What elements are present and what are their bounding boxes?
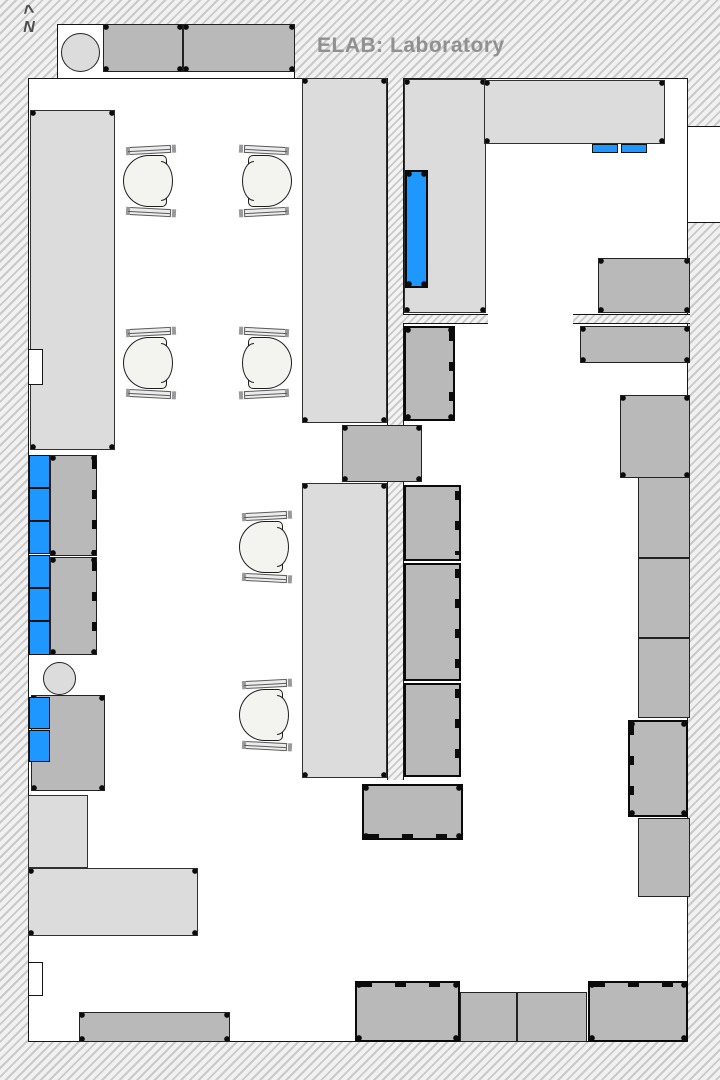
equipment-block bbox=[50, 455, 97, 556]
interior-wall bbox=[387, 78, 404, 426]
chair-armrest bbox=[243, 511, 287, 521]
blue-equipment bbox=[29, 730, 50, 762]
chair-armrest bbox=[244, 327, 288, 337]
chair-seat bbox=[248, 155, 292, 207]
blue-equipment bbox=[29, 621, 50, 655]
counter-block bbox=[302, 78, 387, 423]
blue-equipment bbox=[29, 455, 50, 488]
counter-block bbox=[30, 110, 115, 450]
chair bbox=[238, 328, 293, 398]
chair-front-edge bbox=[161, 161, 173, 201]
north-arrow: ^ N bbox=[14, 6, 44, 36]
blue-equipment bbox=[29, 521, 50, 554]
door-notch bbox=[28, 349, 43, 385]
chair-armrest bbox=[243, 741, 287, 751]
interior-wall bbox=[387, 482, 404, 780]
chair-armrest bbox=[244, 207, 288, 217]
chair-armrest bbox=[127, 327, 171, 337]
chair bbox=[122, 328, 177, 398]
chair-armrest bbox=[127, 145, 171, 155]
equipment-block bbox=[580, 326, 690, 363]
blue-equipment bbox=[29, 697, 50, 729]
chair-armrest bbox=[127, 207, 171, 217]
stool bbox=[61, 33, 100, 72]
counter-block bbox=[28, 795, 88, 868]
chair-front-edge bbox=[242, 161, 254, 201]
chair bbox=[238, 680, 293, 750]
counter-block bbox=[302, 483, 387, 778]
blue-equipment bbox=[29, 488, 50, 521]
equipment-block bbox=[404, 485, 461, 561]
chair-front-edge bbox=[242, 343, 254, 383]
chair-front-edge bbox=[277, 527, 289, 567]
chair bbox=[238, 146, 293, 216]
equipment-block bbox=[362, 784, 463, 840]
blue-equipment bbox=[29, 588, 50, 621]
equipment-block bbox=[342, 425, 422, 482]
equipment-block bbox=[50, 557, 97, 655]
blue-equipment bbox=[592, 144, 618, 153]
blue-equipment bbox=[29, 555, 50, 588]
equipment-block bbox=[79, 1012, 230, 1042]
chair-front-edge bbox=[277, 695, 289, 735]
equipment-block bbox=[638, 558, 690, 638]
counter-block bbox=[28, 868, 198, 936]
equipment-block bbox=[404, 326, 455, 421]
chair-front-edge bbox=[161, 343, 173, 383]
equipment-block bbox=[404, 683, 461, 777]
instrument-block bbox=[628, 720, 688, 817]
equipment-block bbox=[638, 818, 690, 897]
equipment-block bbox=[598, 258, 690, 313]
chair-armrest bbox=[244, 389, 288, 399]
equipment-block bbox=[588, 981, 688, 1042]
equipment-block bbox=[517, 992, 587, 1042]
interior-wall bbox=[403, 314, 488, 324]
equipment-block bbox=[460, 992, 517, 1042]
wall-opening-right bbox=[688, 126, 720, 223]
chair-armrest bbox=[127, 389, 171, 399]
counter-block bbox=[484, 80, 665, 144]
equipment-block bbox=[620, 395, 690, 478]
chair bbox=[238, 512, 293, 582]
blue-equipment bbox=[621, 144, 647, 153]
chair-seat bbox=[248, 337, 292, 389]
interior-wall bbox=[573, 314, 690, 324]
equipment-block bbox=[638, 477, 690, 558]
blue-equipment bbox=[405, 170, 428, 288]
equipment-bench bbox=[103, 24, 183, 72]
stool bbox=[43, 662, 76, 695]
chair-armrest bbox=[243, 573, 287, 583]
floorplan-canvas: ^ N ELAB: Laboratory bbox=[0, 0, 720, 1080]
page-title: ELAB: Laboratory bbox=[317, 34, 505, 58]
door-notch bbox=[28, 962, 43, 996]
chair-armrest bbox=[243, 679, 287, 689]
chair-armrest bbox=[244, 145, 288, 155]
equipment-block bbox=[404, 563, 461, 681]
chair bbox=[122, 146, 177, 216]
equipment-block bbox=[638, 638, 690, 718]
equipment-block bbox=[355, 981, 460, 1042]
equipment-bench bbox=[183, 24, 295, 72]
